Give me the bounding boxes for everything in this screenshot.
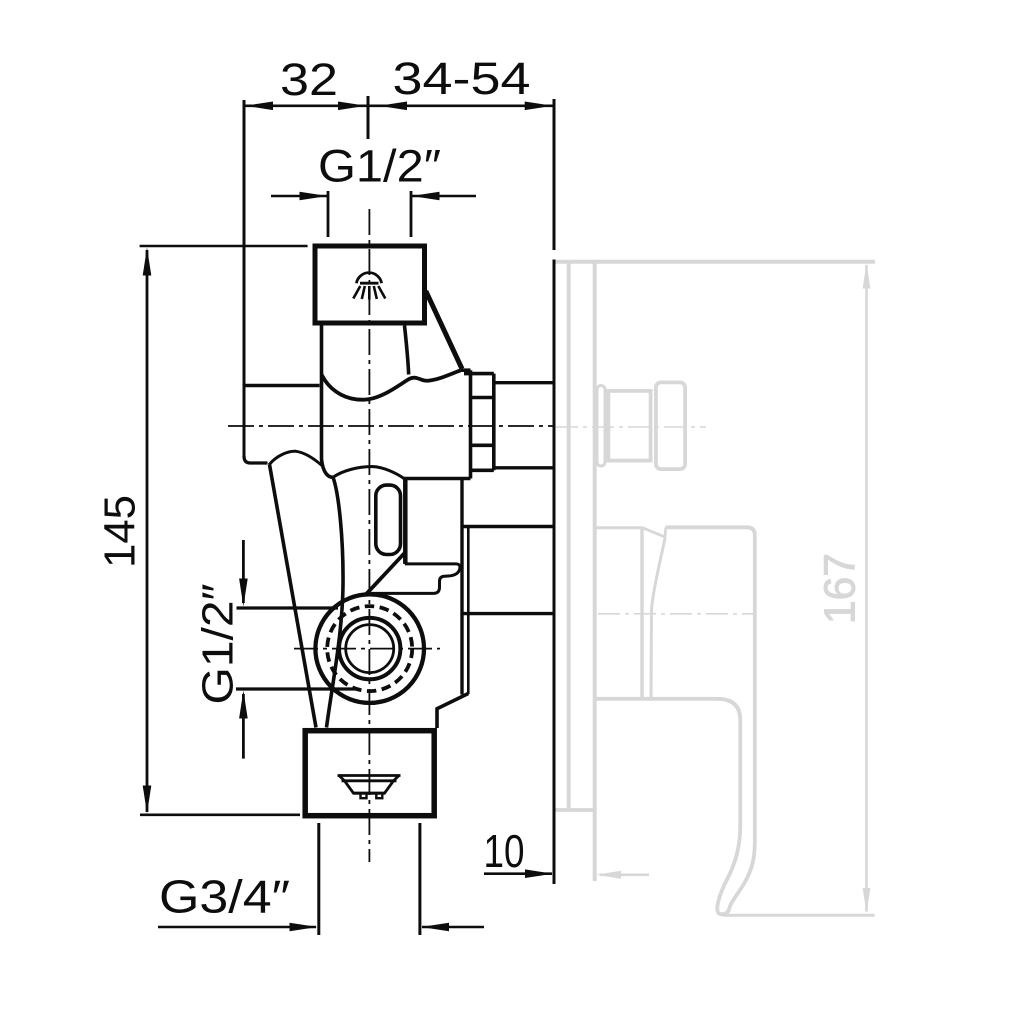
- svg-text:167: 167: [816, 553, 865, 624]
- svg-text:G3/4″: G3/4″: [159, 871, 290, 923]
- svg-text:145: 145: [96, 495, 145, 568]
- svg-text:10: 10: [484, 825, 525, 877]
- svg-text:G1/2″: G1/2″: [194, 584, 243, 705]
- svg-text:G1/2″: G1/2″: [318, 141, 441, 192]
- svg-text:34-54: 34-54: [393, 53, 531, 104]
- svg-text:32: 32: [280, 54, 338, 105]
